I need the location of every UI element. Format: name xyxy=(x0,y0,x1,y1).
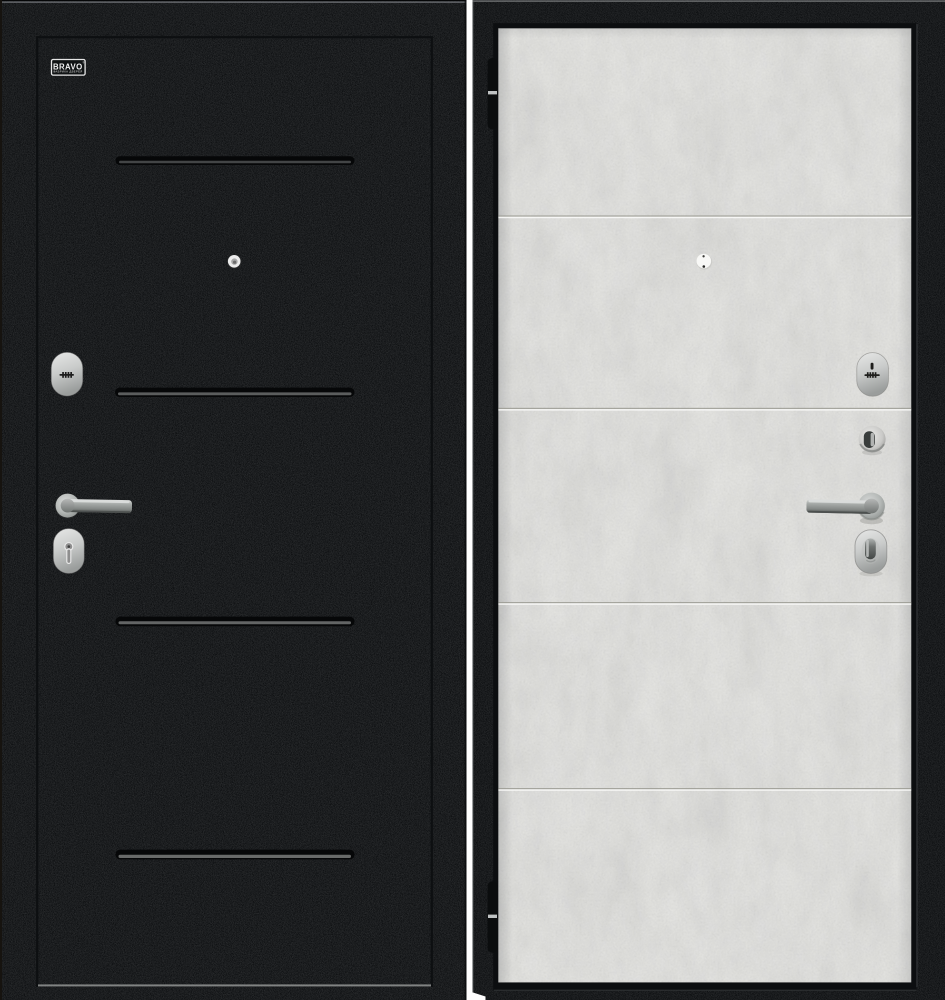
svg-text:®: ® xyxy=(83,61,85,65)
svg-text:ФАБРИКА ДВЕРЕЙ: ФАБРИКА ДВЕРЕЙ xyxy=(53,70,82,74)
